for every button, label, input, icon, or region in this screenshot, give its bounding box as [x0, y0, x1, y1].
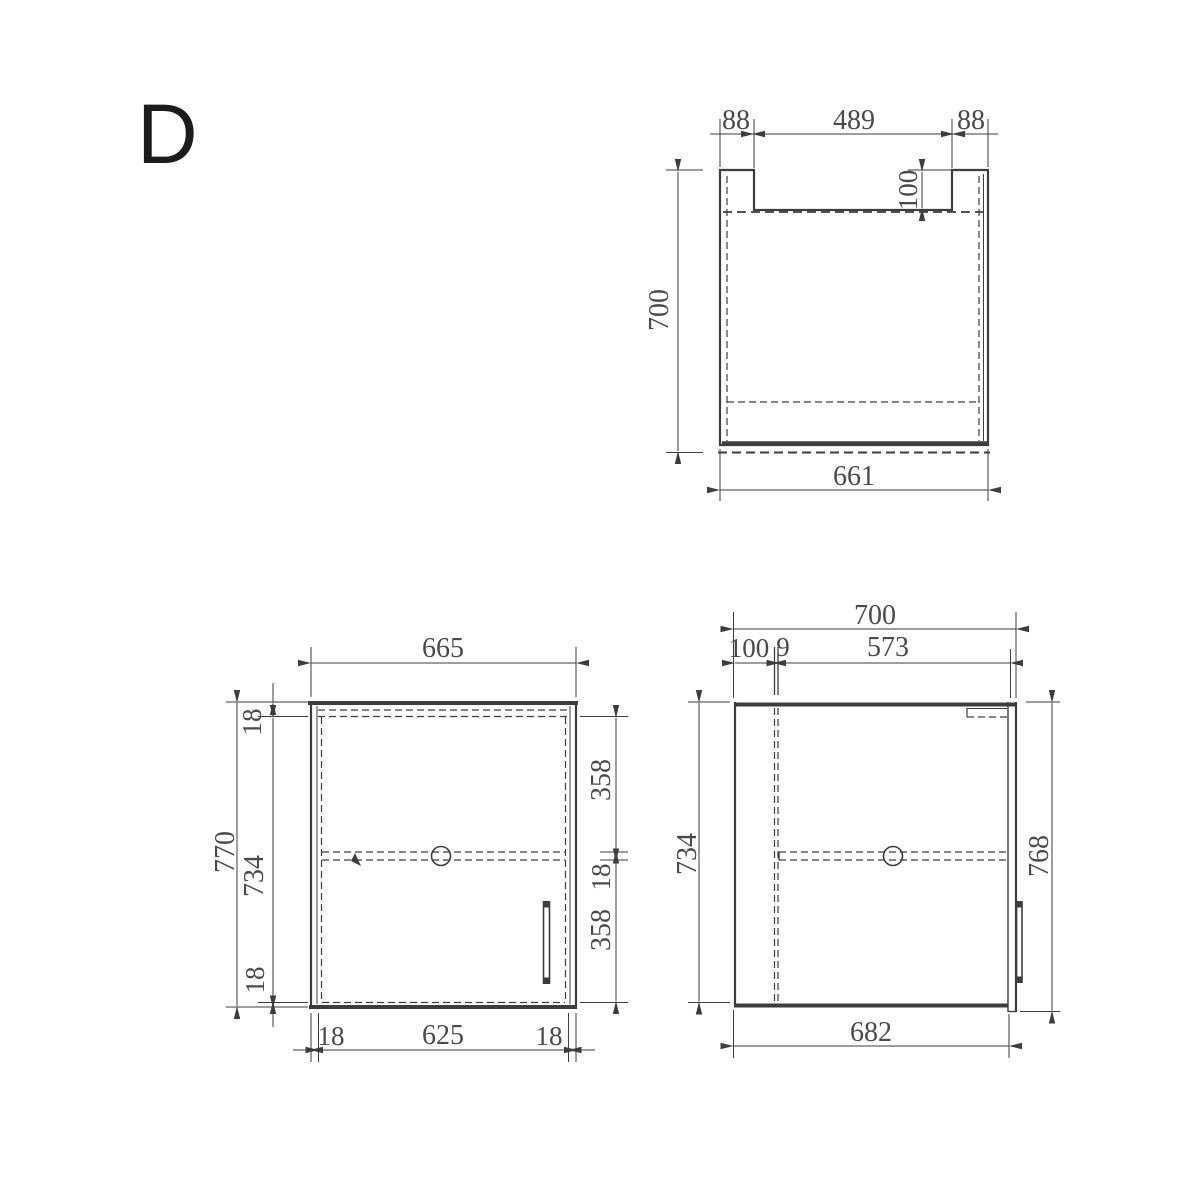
dim-side-depth: 700 — [854, 600, 896, 631]
front-view: 665 770 18 734 18 358 18 358 — [210, 633, 628, 1062]
dim-front-shelf-thickness: 18 — [586, 864, 616, 891]
dim-front-upper-section: 358 — [586, 759, 617, 801]
dim-top-cutout-width: 489 — [833, 105, 875, 136]
dim-top-left-shoulder: 88 — [722, 105, 750, 136]
dim-front-left-panel: 18 — [318, 1021, 345, 1051]
dim-front-inner-height: 734 — [239, 855, 270, 897]
dim-front-inner-width: 625 — [422, 1020, 464, 1051]
top-view-hidden-lines — [718, 174, 990, 453]
dim-side-bottom-depth: 682 — [850, 1017, 892, 1048]
dim-top-right-shoulder: 88 — [957, 105, 985, 136]
dim-front-top-panel: 18 — [237, 709, 267, 736]
dim-front-width: 665 — [422, 633, 464, 664]
dim-side-inner-height: 734 — [672, 833, 703, 875]
side-view-hidden-lines — [775, 708, 1008, 1002]
shelf-pin-hole — [432, 847, 451, 866]
dim-front-lower-section: 358 — [586, 909, 617, 951]
cad-drawing-canvas: D 88 489 88 — [0, 0, 1200, 1200]
dim-side-back-gap: 100 — [729, 633, 770, 663]
dim-front-height: 770 — [210, 831, 241, 873]
drawing-sheet: D 88 489 88 — [0, 0, 1200, 1200]
side-view: 700 100 9 573 734 768 682 — [672, 600, 1060, 1058]
dim-top-depth: 700 — [644, 289, 675, 331]
dim-front-right-panel: 18 — [536, 1021, 563, 1051]
dim-front-bottom-panel: 18 — [240, 967, 270, 994]
dim-side-partition: 9 — [776, 632, 790, 662]
front-view-outline — [308, 701, 578, 1009]
shelf-pin-hole-side — [884, 847, 903, 866]
dim-top-width: 661 — [833, 461, 875, 492]
side-door-handle — [1016, 901, 1023, 983]
top-view: 88 489 88 100 700 661 — [644, 105, 998, 501]
side-view-outline — [734, 702, 1017, 1012]
dim-side-height: 768 — [1024, 835, 1055, 877]
sheet-label: D — [137, 87, 198, 181]
dim-top-cutout-depth: 100 — [893, 170, 923, 211]
front-door-handle — [543, 901, 550, 984]
side-view-dimensions: 700 100 9 573 734 768 682 — [672, 600, 1060, 1058]
dim-side-front-section: 573 — [867, 632, 909, 663]
